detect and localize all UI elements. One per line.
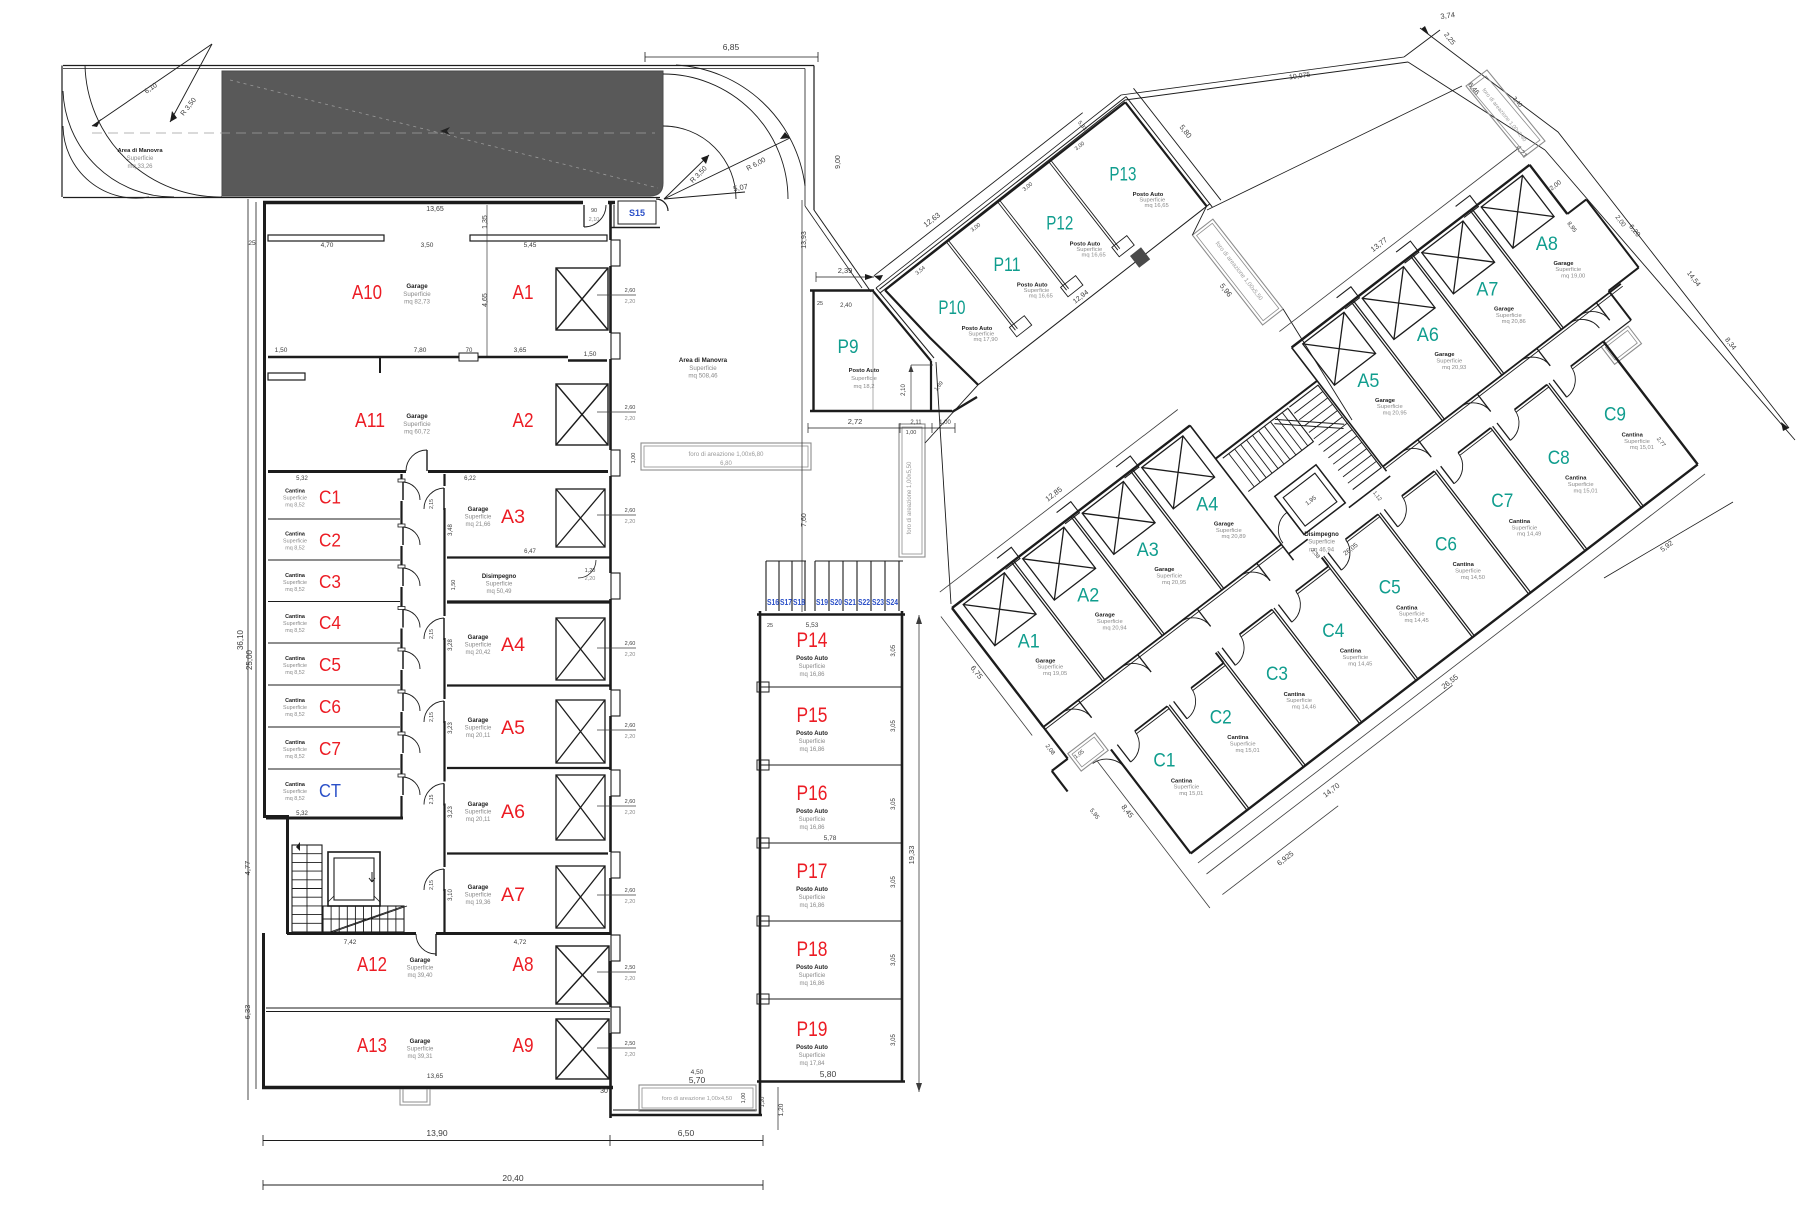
svg-text:5,80: 5,80 (820, 1069, 837, 1079)
svg-text:1,00: 1,00 (741, 1093, 747, 1104)
svg-text:Superficie: Superficie (283, 705, 307, 711)
svg-text:S22: S22 (858, 598, 870, 607)
svg-text:P10: P10 (938, 298, 965, 319)
svg-text:Area di Manovra: Area di Manovra (117, 148, 163, 154)
svg-text:Area di Manovra: Area di Manovra (679, 357, 728, 364)
svg-text:Superficie: Superficie (799, 895, 826, 901)
svg-text:Superficie: Superficie (465, 809, 492, 815)
svg-text:6,22: 6,22 (464, 476, 476, 482)
svg-text:2,60: 2,60 (625, 723, 636, 729)
svg-text:A6: A6 (1417, 325, 1439, 346)
svg-text:S18: S18 (793, 598, 805, 607)
svg-text:2,50: 2,50 (625, 965, 636, 971)
svg-text:A2: A2 (513, 410, 534, 432)
svg-text:4,72: 4,72 (514, 939, 527, 946)
svg-text:5,53: 5,53 (806, 622, 819, 629)
svg-text:mq 15,01: mq 15,01 (1236, 748, 1260, 754)
svg-text:2,20: 2,20 (585, 576, 596, 582)
svg-text:mq 16,65: mq 16,65 (1029, 294, 1053, 300)
svg-text:C7: C7 (319, 739, 341, 759)
svg-text:4,77: 4,77 (243, 861, 252, 876)
svg-text:3,23: 3,23 (448, 722, 454, 734)
svg-text:Superficie: Superficie (1230, 741, 1256, 747)
svg-text:mq 16,86: mq 16,86 (799, 825, 825, 831)
svg-text:A4: A4 (1196, 494, 1218, 515)
svg-text:Cantina: Cantina (1171, 778, 1193, 784)
svg-text:S15: S15 (629, 208, 645, 218)
svg-text:A1: A1 (513, 282, 534, 304)
svg-text:Superficie: Superficie (1377, 404, 1403, 410)
svg-text:Posto Auto: Posto Auto (796, 1045, 828, 1051)
svg-text:mq 18,2: mq 18,2 (854, 384, 875, 390)
svg-text:mq 19,36: mq 19,36 (465, 900, 491, 906)
svg-text:Garage: Garage (410, 1039, 431, 1045)
svg-text:Superficie: Superficie (1568, 482, 1594, 488)
svg-text:7,80: 7,80 (414, 347, 427, 354)
svg-text:2,72: 2,72 (848, 417, 863, 426)
svg-text:Superficie: Superficie (465, 725, 492, 731)
svg-text:Superficie: Superficie (1216, 528, 1242, 534)
svg-text:Superficie: Superficie (407, 1047, 434, 1053)
svg-text:Superficie: Superficie (1455, 569, 1481, 575)
svg-text:4,50: 4,50 (691, 1069, 704, 1076)
svg-text:Superficie: Superficie (1174, 785, 1200, 791)
svg-text:2,20: 2,20 (625, 519, 636, 525)
svg-text:3,05: 3,05 (891, 644, 897, 656)
svg-text:Garage: Garage (1035, 658, 1056, 664)
svg-text:6,33: 6,33 (243, 1005, 252, 1020)
svg-text:9,00: 9,00 (835, 155, 842, 169)
svg-text:2,20: 2,20 (625, 652, 636, 658)
svg-text:mq 20,11: mq 20,11 (466, 733, 491, 739)
svg-text:2,20: 2,20 (625, 810, 636, 816)
svg-text:P17: P17 (797, 860, 828, 883)
svg-text:Superficie: Superficie (283, 663, 307, 669)
svg-text:mq 16,65: mq 16,65 (1082, 253, 1106, 259)
svg-text:2,20: 2,20 (625, 899, 636, 905)
svg-text:A5: A5 (1357, 371, 1379, 392)
svg-text:S21: S21 (844, 598, 856, 607)
svg-text:3,65: 3,65 (514, 347, 527, 354)
svg-text:7,60: 7,60 (801, 513, 808, 527)
svg-text:Superficie: Superficie (799, 739, 826, 745)
svg-text:5,70: 5,70 (689, 1075, 706, 1085)
svg-text:Garage: Garage (468, 507, 489, 513)
svg-text:2,20: 2,20 (625, 1052, 636, 1058)
svg-text:Superficie: Superficie (1308, 540, 1335, 546)
svg-text:2,15: 2,15 (429, 499, 435, 509)
svg-text:mq 20,86: mq 20,86 (1502, 319, 1526, 325)
svg-text:P18: P18 (797, 938, 828, 961)
svg-text:Cantina: Cantina (285, 614, 306, 620)
svg-text:mq 20,11: mq 20,11 (466, 817, 491, 823)
svg-text:mq 20,94: mq 20,94 (1103, 625, 1128, 631)
svg-text:mq 20,42: mq 20,42 (465, 650, 491, 656)
svg-text:P11: P11 (994, 255, 1021, 276)
svg-text:mq 15,01: mq 15,01 (1574, 488, 1598, 494)
svg-text:Cantina: Cantina (1453, 562, 1475, 568)
svg-text:S20: S20 (830, 598, 842, 607)
svg-text:A13: A13 (357, 1035, 387, 1057)
svg-text:Superficie: Superficie (799, 1053, 826, 1059)
svg-text:C6: C6 (319, 697, 341, 717)
svg-text:mq 19,00: mq 19,00 (1561, 274, 1585, 280)
svg-text:A7: A7 (501, 885, 525, 906)
svg-text:S17: S17 (780, 598, 792, 607)
svg-text:25: 25 (817, 301, 823, 307)
svg-text:mq 14,50: mq 14,50 (1461, 575, 1485, 581)
svg-text:mq 50,49: mq 50,49 (486, 589, 512, 595)
svg-text:25: 25 (248, 240, 256, 247)
svg-text:Superficie: Superficie (1512, 525, 1538, 531)
svg-text:Superficie: Superficie (283, 789, 307, 795)
svg-text:Cantina: Cantina (1227, 735, 1249, 741)
svg-text:mq 20,95: mq 20,95 (1383, 411, 1407, 417)
svg-text:2,20: 2,20 (625, 734, 636, 740)
svg-text:mq 508,46: mq 508,46 (688, 373, 718, 380)
svg-text:C6: C6 (1435, 534, 1457, 555)
svg-text:C9: C9 (1604, 405, 1626, 426)
svg-text:foro di areazione 1,00x6,80: foro di areazione 1,00x6,80 (689, 451, 765, 458)
svg-text:Superficie: Superficie (689, 365, 717, 372)
svg-text:A3: A3 (501, 507, 525, 528)
svg-text:19,33: 19,33 (907, 846, 916, 865)
svg-text:A11: A11 (355, 410, 385, 432)
svg-text:Superficie: Superficie (1343, 655, 1369, 661)
svg-text:36,10: 36,10 (236, 629, 245, 650)
svg-text:Cantina: Cantina (1340, 649, 1362, 655)
svg-text:Garage: Garage (406, 413, 428, 420)
svg-text:30: 30 (600, 1088, 608, 1095)
svg-text:mq 8,52: mq 8,52 (285, 587, 304, 593)
svg-text:2,15: 2,15 (429, 794, 435, 804)
svg-text:5,78: 5,78 (824, 835, 837, 842)
svg-text:3,05: 3,05 (891, 876, 897, 888)
svg-text:Superficie: Superficie (1037, 665, 1063, 671)
svg-text:Cantina: Cantina (285, 698, 306, 704)
svg-text:2,20: 2,20 (625, 976, 636, 982)
svg-text:2,60: 2,60 (625, 508, 636, 514)
svg-text:A10: A10 (352, 282, 382, 304)
svg-text:2,60: 2,60 (625, 405, 636, 411)
svg-text:Posto Auto: Posto Auto (796, 809, 828, 815)
svg-text:mq 14,45: mq 14,45 (1348, 661, 1372, 667)
svg-text:C2: C2 (1210, 707, 1232, 728)
svg-text:Superficie: Superficie (1436, 359, 1462, 365)
svg-text:Garage: Garage (1214, 521, 1235, 527)
svg-text:mq 8,52: mq 8,52 (285, 503, 304, 509)
svg-text:2,50: 2,50 (625, 1041, 636, 1047)
svg-text:mq 20,93: mq 20,93 (1442, 365, 1466, 371)
svg-text:A7: A7 (1476, 280, 1498, 301)
svg-text:Garage: Garage (468, 635, 489, 641)
svg-text:Disimpegno: Disimpegno (1304, 532, 1339, 538)
svg-text:mq 14,46: mq 14,46 (1292, 705, 1316, 711)
svg-text:P9: P9 (838, 337, 859, 358)
svg-text:90: 90 (591, 208, 597, 214)
svg-text:Cantina: Cantina (1396, 605, 1418, 611)
svg-text:13,65: 13,65 (426, 206, 444, 213)
svg-text:P16: P16 (797, 782, 828, 805)
svg-text:3,28: 3,28 (448, 639, 454, 651)
svg-text:Cantina: Cantina (285, 740, 306, 746)
svg-text:Posto Auto: Posto Auto (796, 887, 828, 893)
svg-text:Superficie: Superficie (1156, 573, 1182, 579)
svg-text:Superficie: Superficie (799, 817, 826, 823)
svg-text:A12: A12 (357, 954, 387, 976)
svg-text:Cantina: Cantina (285, 573, 306, 579)
svg-text:Cantina: Cantina (285, 782, 306, 788)
svg-text:Superficie: Superficie (799, 973, 826, 979)
svg-text:3,05: 3,05 (891, 1034, 897, 1046)
svg-text:P19: P19 (797, 1018, 828, 1041)
svg-text:C5: C5 (319, 655, 341, 675)
svg-text:mq 16,86: mq 16,86 (799, 903, 825, 909)
svg-text:1,50: 1,50 (584, 351, 597, 358)
svg-text:25: 25 (767, 623, 773, 629)
svg-text:A9: A9 (513, 1035, 534, 1057)
svg-text:Superficie: Superficie (465, 514, 492, 520)
svg-text:mq 17,84: mq 17,84 (799, 1061, 825, 1067)
svg-text:mq 8,52: mq 8,52 (285, 796, 304, 802)
svg-text:A8: A8 (513, 954, 534, 976)
svg-text:Garage: Garage (1435, 352, 1456, 358)
svg-text:6,80: 6,80 (720, 461, 732, 467)
svg-text:mq 15,01: mq 15,01 (1630, 445, 1654, 451)
svg-text:1,50: 1,50 (275, 347, 288, 354)
svg-text:Superficie: Superficie (1555, 267, 1581, 273)
svg-text:Superficie: Superficie (407, 966, 434, 972)
svg-text:mq 16,86: mq 16,86 (799, 672, 825, 678)
svg-text:A8: A8 (1536, 234, 1558, 255)
svg-text:Garage: Garage (468, 802, 489, 808)
svg-text:Cantina: Cantina (1622, 433, 1644, 439)
svg-text:foro di areazione 1,00x4,50: foro di areazione 1,00x4,50 (662, 1096, 732, 1102)
svg-text:P12: P12 (1046, 214, 1073, 235)
svg-text:13,90: 13,90 (426, 1128, 448, 1138)
svg-text:25,00: 25,00 (245, 649, 254, 670)
svg-text:mq 60,72: mq 60,72 (404, 429, 430, 436)
svg-text:mq 8,52: mq 8,52 (285, 628, 304, 634)
svg-text:2,15: 2,15 (429, 712, 435, 722)
svg-text:S23: S23 (872, 598, 884, 607)
svg-text:2,60: 2,60 (625, 288, 636, 294)
svg-text:Cantina: Cantina (1284, 692, 1306, 698)
svg-text:A2: A2 (1077, 586, 1099, 607)
svg-text:1,20: 1,20 (778, 1103, 785, 1116)
svg-text:3,10: 3,10 (448, 889, 454, 901)
svg-text:Superficie: Superficie (1496, 313, 1522, 319)
svg-text:C4: C4 (319, 613, 341, 633)
svg-text:Superficie: Superficie (283, 539, 307, 545)
svg-text:13,93: 13,93 (801, 231, 808, 249)
svg-text:mq 8,52: mq 8,52 (285, 546, 304, 552)
svg-text:1,00: 1,00 (631, 453, 637, 464)
svg-text:CT: CT (319, 781, 341, 801)
svg-text:C1: C1 (1153, 751, 1175, 772)
svg-text:Superficie: Superficie (486, 582, 513, 588)
svg-text:5,32: 5,32 (296, 811, 308, 817)
svg-text:2,20: 2,20 (625, 299, 636, 305)
svg-text:Cantina: Cantina (285, 532, 306, 538)
svg-text:3,05: 3,05 (891, 798, 897, 810)
svg-text:mq 33,26: mq 33,26 (127, 164, 153, 170)
svg-text:C7: C7 (1491, 491, 1513, 512)
svg-text:3,05: 3,05 (891, 720, 897, 732)
svg-text:mq 16,65: mq 16,65 (1145, 203, 1169, 209)
svg-text:P13: P13 (1109, 164, 1136, 185)
svg-text:Superficie: Superficie (465, 893, 492, 899)
svg-text:2,40: 2,40 (840, 303, 852, 309)
svg-text:mq 8,52: mq 8,52 (285, 754, 304, 760)
svg-text:A6: A6 (501, 802, 525, 823)
svg-text:Superficie: Superficie (799, 664, 826, 670)
svg-text:Superficie: Superficie (403, 421, 431, 428)
svg-text:2,10: 2,10 (901, 384, 907, 396)
svg-text:S19: S19 (816, 598, 828, 607)
svg-text:mq 8,52: mq 8,52 (285, 712, 304, 718)
svg-text:A4: A4 (501, 635, 525, 656)
svg-text:Posto Auto: Posto Auto (796, 731, 828, 737)
svg-text:Posto Auto: Posto Auto (796, 656, 828, 662)
svg-text:1,50: 1,50 (451, 580, 457, 591)
svg-text:Garage: Garage (468, 718, 489, 724)
svg-text:mq 17,90: mq 17,90 (974, 337, 998, 343)
svg-text:2,15: 2,15 (429, 880, 435, 890)
svg-text:Superficie: Superficie (283, 621, 307, 627)
svg-text:C1: C1 (319, 488, 341, 508)
svg-text:3,05: 3,05 (891, 954, 897, 966)
svg-text:2,60: 2,60 (625, 799, 636, 805)
svg-text:Superficie: Superficie (127, 156, 154, 162)
svg-text:1,35: 1,35 (482, 215, 489, 229)
svg-text:Garage: Garage (1154, 567, 1175, 573)
svg-text:mq 20,95: mq 20,95 (1162, 580, 1186, 586)
svg-text:mq 14,45: mq 14,45 (1405, 618, 1429, 624)
svg-text:A5: A5 (501, 718, 525, 739)
svg-text:mq 39,31: mq 39,31 (407, 1054, 433, 1060)
svg-text:Garage: Garage (1095, 613, 1116, 619)
svg-text:Superficie: Superficie (1624, 439, 1650, 445)
svg-text:2,60: 2,60 (625, 641, 636, 647)
svg-text:Garage: Garage (468, 885, 489, 891)
svg-text:foro di areazione 1,00x5,50: foro di areazione 1,00x5,50 (907, 461, 913, 534)
svg-text:1,00: 1,00 (906, 430, 917, 436)
svg-text:Superficie: Superficie (1399, 612, 1425, 618)
svg-text:Disimpegno: Disimpegno (482, 574, 517, 580)
svg-text:Cantina: Cantina (285, 489, 306, 495)
svg-text:5,32: 5,32 (296, 476, 308, 482)
svg-text:6,47: 6,47 (524, 549, 536, 555)
svg-text:C8: C8 (1548, 448, 1570, 469)
svg-text:7,42: 7,42 (344, 939, 357, 946)
svg-text:mq 16,86: mq 16,86 (799, 747, 825, 753)
svg-text:2,15: 2,15 (429, 629, 435, 639)
svg-text:C5: C5 (1379, 578, 1401, 599)
svg-text:mq 14,49: mq 14,49 (1517, 532, 1541, 538)
svg-text:C3: C3 (319, 572, 341, 592)
svg-text:mq 15,01: mq 15,01 (1179, 791, 1203, 797)
svg-text:Garage: Garage (1375, 398, 1396, 404)
svg-text:A1: A1 (1018, 631, 1040, 652)
svg-text:5,45: 5,45 (524, 242, 537, 249)
svg-text:mq 8,52: mq 8,52 (285, 670, 304, 676)
svg-text:Superficie: Superficie (283, 747, 307, 753)
svg-text:Superficie: Superficie (283, 580, 307, 586)
svg-text:Superficie: Superficie (283, 496, 307, 502)
svg-text:3,48: 3,48 (448, 524, 454, 536)
svg-text:mq 82,73: mq 82,73 (404, 299, 430, 306)
svg-text:Superficie: Superficie (465, 643, 492, 649)
svg-text:P15: P15 (797, 704, 828, 727)
svg-text:4,70: 4,70 (321, 242, 334, 249)
svg-text:Cantina: Cantina (1509, 519, 1531, 525)
svg-text:Garage: Garage (1554, 261, 1575, 267)
svg-text:Cantina: Cantina (285, 656, 306, 662)
svg-text:Garage: Garage (406, 283, 428, 290)
svg-text:Superficie: Superficie (403, 291, 431, 298)
svg-text:Posto Auto: Posto Auto (796, 965, 828, 971)
svg-text:2,60: 2,60 (625, 888, 636, 894)
svg-text:3,23: 3,23 (448, 806, 454, 818)
svg-text:A3: A3 (1137, 540, 1159, 561)
svg-text:Superficie: Superficie (1097, 619, 1123, 625)
svg-text:C2: C2 (319, 531, 341, 551)
svg-text:mq 19,05: mq 19,05 (1043, 671, 1067, 677)
svg-text:Superficie: Superficie (1286, 698, 1312, 704)
svg-text:6,50: 6,50 (678, 1128, 695, 1138)
svg-text:mq 21,66: mq 21,66 (465, 522, 491, 528)
svg-text:Cantina: Cantina (1565, 476, 1587, 482)
svg-text:mq 20,89: mq 20,89 (1222, 534, 1246, 540)
svg-text:mq 16,86: mq 16,86 (799, 981, 825, 987)
svg-text:P14: P14 (797, 629, 828, 652)
svg-text:S16: S16 (767, 598, 779, 607)
svg-text:Garage: Garage (410, 958, 431, 964)
svg-text:S24: S24 (886, 598, 898, 607)
svg-text:4,65: 4,65 (482, 293, 489, 307)
svg-text:Garage: Garage (1494, 307, 1515, 313)
svg-text:C3: C3 (1266, 664, 1288, 685)
svg-text:6,85: 6,85 (723, 42, 740, 52)
svg-text:2,11: 2,11 (910, 420, 922, 426)
svg-text:1,20: 1,20 (760, 1097, 766, 1108)
svg-text:70: 70 (466, 348, 473, 354)
svg-text:3,50: 3,50 (421, 242, 434, 249)
svg-text:Posto Auto: Posto Auto (849, 368, 880, 374)
svg-text:20,40: 20,40 (502, 1173, 524, 1183)
svg-text:C4: C4 (1322, 621, 1344, 642)
svg-text:13,65: 13,65 (427, 1073, 444, 1080)
svg-text:mq 39,40: mq 39,40 (407, 973, 433, 979)
svg-text:2,20: 2,20 (625, 416, 636, 422)
